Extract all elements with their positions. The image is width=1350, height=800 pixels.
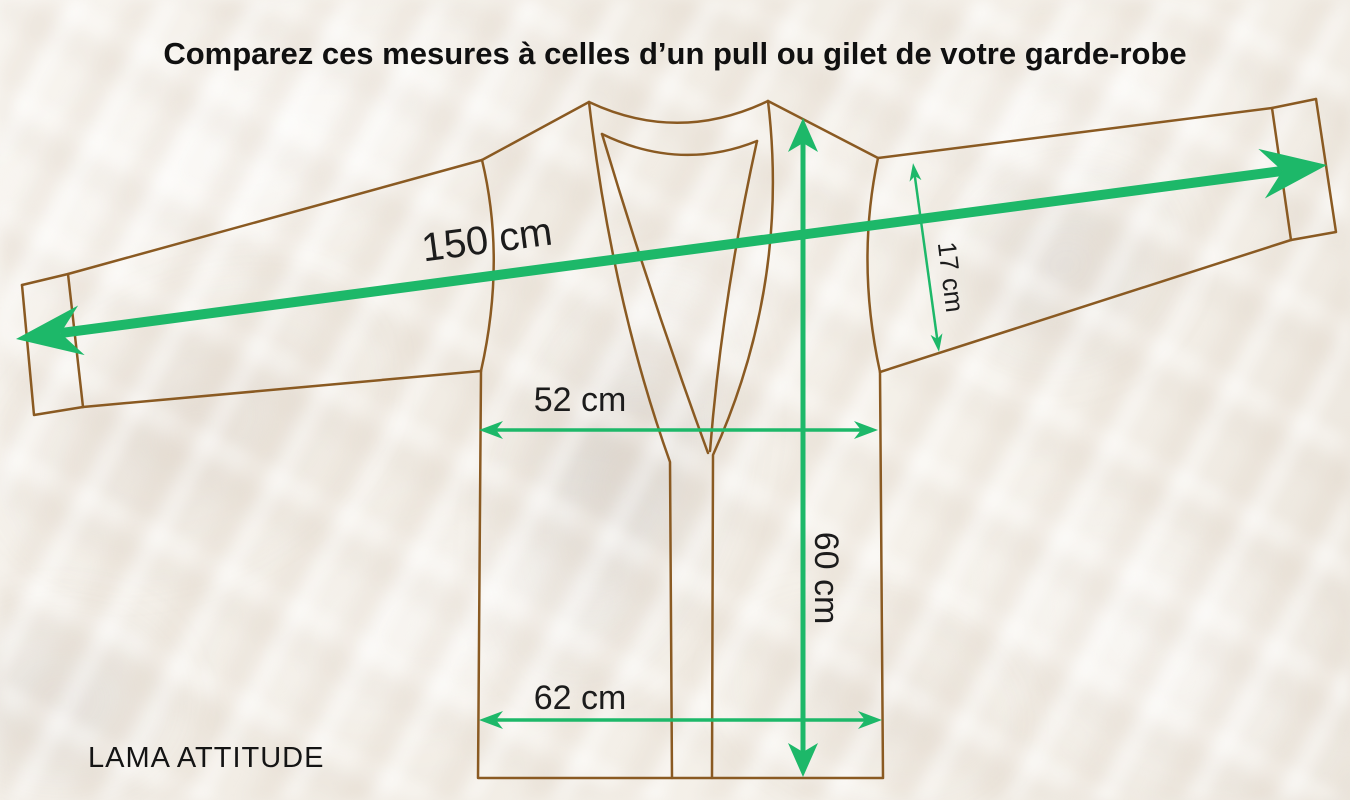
measurement-label-body-length: 60 cm (809, 532, 843, 625)
left-cuff-seam (68, 274, 83, 407)
right-cuff-outer-edge (1291, 99, 1336, 240)
cardigan-measurement-diagram (0, 0, 1350, 800)
left-front-band-outer-edge (589, 102, 672, 778)
back-neck-inner-curve (602, 134, 757, 155)
arrow-150cm-wingspan (61, 171, 1283, 333)
measurement-label-hem-width: 62 cm (534, 681, 627, 715)
right-shoulder-seam (768, 101, 878, 158)
right-front-band-outer-edge (712, 101, 773, 778)
left-sleeve-top-edge (22, 160, 482, 285)
measurement-label-chest-width: 52 cm (534, 383, 627, 417)
size-guide-infographic: Comparez ces mesures à celles d’un pull … (0, 0, 1350, 800)
left-shoulder-seam (482, 102, 589, 160)
back-neck-outer-curve (589, 101, 768, 123)
right-armhole-seam (867, 158, 880, 372)
left-armhole-seam (481, 160, 494, 371)
measurement-label-sleeve-width: 17 cm (934, 240, 968, 313)
page-title: Comparez ces mesures à celles d’un pull … (0, 36, 1350, 72)
right-sleeve-top-edge (878, 99, 1316, 158)
left-sleeve-bottom-edge (83, 371, 481, 407)
brand-name: LAMA ATTITUDE (88, 742, 324, 775)
left-cuff-outer-edge (22, 285, 83, 415)
cardigan-outline-drawing (22, 99, 1336, 778)
